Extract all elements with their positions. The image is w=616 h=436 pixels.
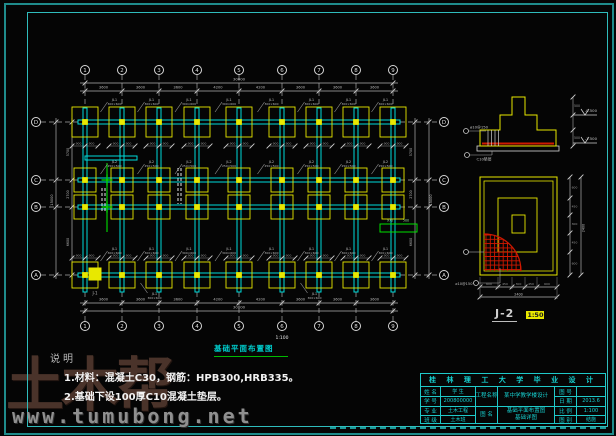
svg-text:250×500: 250×500 (342, 164, 356, 168)
svg-text:900: 900 (126, 253, 132, 257)
svg-text:2: 2 (120, 324, 124, 330)
note-item-2: 2.基础下设100厚C10混凝土垫层。 (64, 388, 299, 403)
svg-text:B: B (442, 205, 446, 211)
tb-project-label: 工程名称 (476, 387, 498, 406)
svg-text:900: 900 (163, 253, 169, 257)
svg-text:500: 500 (403, 219, 409, 223)
svg-text:4200: 4200 (256, 86, 266, 90)
svg-text:900: 900 (323, 253, 329, 257)
svg-text:450: 450 (572, 241, 578, 245)
watermark-url: www.tumubong.net (12, 404, 253, 428)
svg-text:30000: 30000 (233, 77, 246, 82)
svg-text:900: 900 (397, 141, 403, 145)
svg-text:5: 5 (237, 324, 241, 330)
svg-text:300×600: 300×600 (145, 251, 159, 255)
svg-text:450: 450 (528, 282, 534, 286)
svg-text:450: 450 (502, 282, 508, 286)
svg-text:⌀10@150: ⌀10@150 (455, 282, 473, 286)
svg-text:2700: 2700 (66, 190, 70, 198)
svg-text:900: 900 (273, 141, 279, 145)
svg-text:300: 300 (516, 282, 522, 286)
svg-text:300×600: 300×600 (148, 296, 162, 300)
svg-text:3600: 3600 (136, 298, 146, 302)
svg-text:300×600: 300×600 (108, 102, 122, 106)
tb-value: 结施 (577, 415, 605, 424)
svg-text:A: A (34, 273, 38, 279)
svg-text:4200: 4200 (213, 86, 223, 90)
svg-text:900: 900 (310, 141, 316, 145)
svg-text:900: 900 (230, 141, 236, 145)
svg-text:5: 5 (237, 68, 241, 74)
svg-text:4200: 4200 (256, 298, 266, 302)
svg-text:15000: 15000 (50, 194, 54, 206)
svg-text:3600: 3600 (296, 86, 306, 90)
svg-text:600: 600 (572, 262, 578, 266)
svg-text:250×500: 250×500 (108, 164, 122, 168)
tb-label: 专 业 (421, 406, 441, 415)
svg-text:⌀10@150: ⌀10@150 (470, 125, 489, 130)
svg-text:5700: 5700 (66, 148, 70, 156)
svg-text:6600: 6600 (409, 238, 413, 246)
j2-detail: ⌀10@150600450300450600240060045030045060… (455, 175, 585, 300)
svg-text:900: 900 (126, 141, 132, 145)
svg-text:600: 600 (572, 186, 578, 190)
svg-text:2700: 2700 (409, 190, 413, 198)
svg-text:500: 500 (574, 136, 580, 140)
svg-text:900: 900 (150, 141, 156, 145)
svg-text:300×600: 300×600 (265, 251, 279, 255)
svg-text:3600: 3600 (99, 86, 109, 90)
tb-drawing-line2: 基础详图 (515, 415, 537, 422)
svg-text:2: 2 (120, 68, 124, 74)
svg-text:300×600: 300×600 (182, 102, 196, 106)
tb-value: 土木班 (441, 415, 476, 424)
svg-text:6: 6 (280, 68, 284, 74)
svg-text:900: 900 (243, 253, 249, 257)
svg-text:300: 300 (572, 222, 578, 226)
svg-text:300×600: 300×600 (108, 251, 122, 255)
detail-scale: 1:50 (526, 311, 544, 319)
svg-text:900: 900 (113, 141, 119, 145)
tb-value: 2013.6 (577, 396, 605, 405)
tb-value: 学 生 (441, 387, 476, 396)
svg-text:C: C (34, 178, 38, 184)
svg-text:900: 900 (360, 141, 366, 145)
svg-text:450: 450 (572, 205, 578, 209)
svg-text:8: 8 (354, 68, 358, 74)
svg-text:3: 3 (157, 324, 161, 330)
title-block: 桂 林 理 工 大 学 毕 业 设 计 姓 名 学 生 工程名称 某中学教学楼设… (420, 373, 606, 424)
svg-text:4: 4 (195, 68, 199, 74)
svg-text:6600: 6600 (66, 238, 70, 246)
svg-text:900: 900 (243, 141, 249, 145)
detail-title: J-21:50 (492, 302, 544, 321)
svg-text:2400: 2400 (514, 292, 522, 296)
tb-label: 比 例 (555, 406, 577, 415)
svg-text:3600: 3600 (296, 298, 306, 302)
svg-text:9: 9 (391, 324, 395, 330)
tb-label: 班 级 (421, 415, 441, 424)
svg-text:8: 8 (354, 324, 358, 330)
svg-text:900: 900 (397, 253, 403, 257)
svg-text:4: 4 (195, 324, 199, 330)
svg-text:-1.500: -1.500 (585, 136, 598, 141)
tb-project-value: 某中学教学楼设计 (498, 387, 555, 406)
svg-text:D: D (34, 120, 38, 126)
svg-text:900: 900 (201, 253, 207, 257)
svg-text:J-1: J-1 (91, 291, 97, 296)
svg-text:900: 900 (163, 141, 169, 145)
svg-text:5700: 5700 (409, 148, 413, 156)
svg-text:900: 900 (201, 141, 207, 145)
svg-text:300×600: 300×600 (379, 251, 393, 255)
svg-text:D: D (442, 120, 446, 126)
highlight-green: 970500 (102, 163, 418, 232)
svg-text:900: 900 (286, 141, 292, 145)
svg-text:3600: 3600 (333, 86, 343, 90)
svg-text:300×600: 300×600 (308, 296, 322, 300)
beam-labels: JL1300×600JL1300×600JL1300×600JL1300×600… (101, 98, 393, 300)
svg-text:600: 600 (544, 282, 550, 286)
tb-label: 日 期 (555, 396, 577, 405)
titleblock-header: 桂 林 理 工 大 学 毕 业 设 计 (421, 374, 605, 387)
svg-text:3600: 3600 (370, 298, 380, 302)
plan-scale: 1:100 (276, 336, 289, 341)
note-item-1: 1.材料：混凝土C30，钢筋：HPB300,HRB335。 (64, 369, 299, 384)
svg-text:250×500: 250×500 (222, 164, 236, 168)
svg-text:500: 500 (574, 104, 580, 108)
svg-text:3600: 3600 (173, 86, 183, 90)
svg-text:900: 900 (384, 141, 390, 145)
svg-text:250×500: 250×500 (265, 164, 279, 168)
detail-title-text: J-2 (492, 307, 517, 322)
svg-text:B: B (34, 205, 38, 211)
svg-text:300×600: 300×600 (342, 251, 356, 255)
svg-text:1: 1 (83, 324, 87, 330)
titleblock-body: 姓 名 学 生 工程名称 某中学教学楼设计 图 号 学 号 200800000 … (421, 387, 605, 424)
svg-text:900: 900 (89, 141, 95, 145)
svg-text:4200: 4200 (213, 298, 223, 302)
svg-text:300×600: 300×600 (182, 251, 196, 255)
svg-text:900: 900 (323, 141, 329, 145)
svg-text:15000: 15000 (429, 194, 433, 206)
tb-value: 土木工程 (441, 406, 476, 415)
tb-label: 图 别 (555, 415, 577, 424)
svg-text:3600: 3600 (173, 298, 183, 302)
svg-text:7: 7 (317, 68, 321, 74)
tb-label: 学 号 (421, 396, 441, 405)
svg-text:3600: 3600 (370, 86, 380, 90)
tb-drawing-label: 图 名 (476, 406, 498, 425)
svg-text:300×600: 300×600 (379, 102, 393, 106)
svg-text:A: A (442, 273, 446, 279)
svg-text:900: 900 (360, 253, 366, 257)
svg-text:3600: 3600 (333, 298, 343, 302)
svg-text:30000: 30000 (233, 305, 246, 310)
tb-label: 图 号 (555, 387, 577, 396)
svg-text:250×500: 250×500 (182, 164, 196, 168)
fold-mark-line (330, 427, 606, 429)
svg-text:C10垫层: C10垫层 (476, 157, 491, 162)
svg-text:3600: 3600 (136, 86, 146, 90)
svg-text:970: 970 (387, 219, 393, 223)
svg-text:900: 900 (89, 253, 95, 257)
svg-text:C: C (442, 178, 446, 184)
svg-text:300×600: 300×600 (342, 102, 356, 106)
svg-text:250×500: 250×500 (145, 164, 159, 168)
svg-text:250×500: 250×500 (379, 164, 393, 168)
tb-label: 姓 名 (421, 387, 441, 396)
svg-text:900: 900 (286, 253, 292, 257)
svg-text:9: 9 (391, 68, 395, 74)
tb-value: 200800000 (441, 396, 476, 405)
notes-block: 说明 1.材料：混凝土C30，钢筋：HPB300,HRB335。 2.基础下设1… (50, 350, 299, 403)
svg-text:6: 6 (280, 324, 284, 330)
svg-text:-0.500: -0.500 (585, 108, 598, 113)
svg-text:3: 3 (157, 68, 161, 74)
svg-text:7: 7 (317, 324, 321, 330)
svg-text:300×600: 300×600 (305, 102, 319, 106)
svg-text:3600: 3600 (99, 298, 109, 302)
tb-value (577, 387, 605, 396)
svg-text:250×500: 250×500 (305, 164, 319, 168)
svg-text:900: 900 (76, 141, 82, 145)
svg-text:900: 900 (188, 141, 194, 145)
svg-text:300×600: 300×600 (145, 102, 159, 106)
svg-text:2400: 2400 (582, 224, 586, 232)
section-detail: ⌀10@150C10垫层-0.500-1.500500500 (464, 95, 598, 162)
svg-text:300×600: 300×600 (265, 102, 279, 106)
svg-text:300×600: 300×600 (222, 102, 236, 106)
cad-sheet: 土木帮 112233445566778899DDCCBBAA3600360036… (0, 0, 616, 436)
svg-text:600: 600 (486, 282, 492, 286)
tb-drawing-value: 基础平面布置图 基础详图 (498, 406, 555, 425)
svg-text:900: 900 (76, 253, 82, 257)
svg-text:900: 900 (347, 141, 353, 145)
svg-text:300×600: 300×600 (222, 251, 236, 255)
svg-text:1: 1 (83, 68, 87, 74)
foundation-beams (78, 108, 400, 292)
notes-title: 说明 (50, 350, 299, 365)
tb-value: 1:100 (577, 406, 605, 415)
svg-text:300×600: 300×600 (305, 251, 319, 255)
